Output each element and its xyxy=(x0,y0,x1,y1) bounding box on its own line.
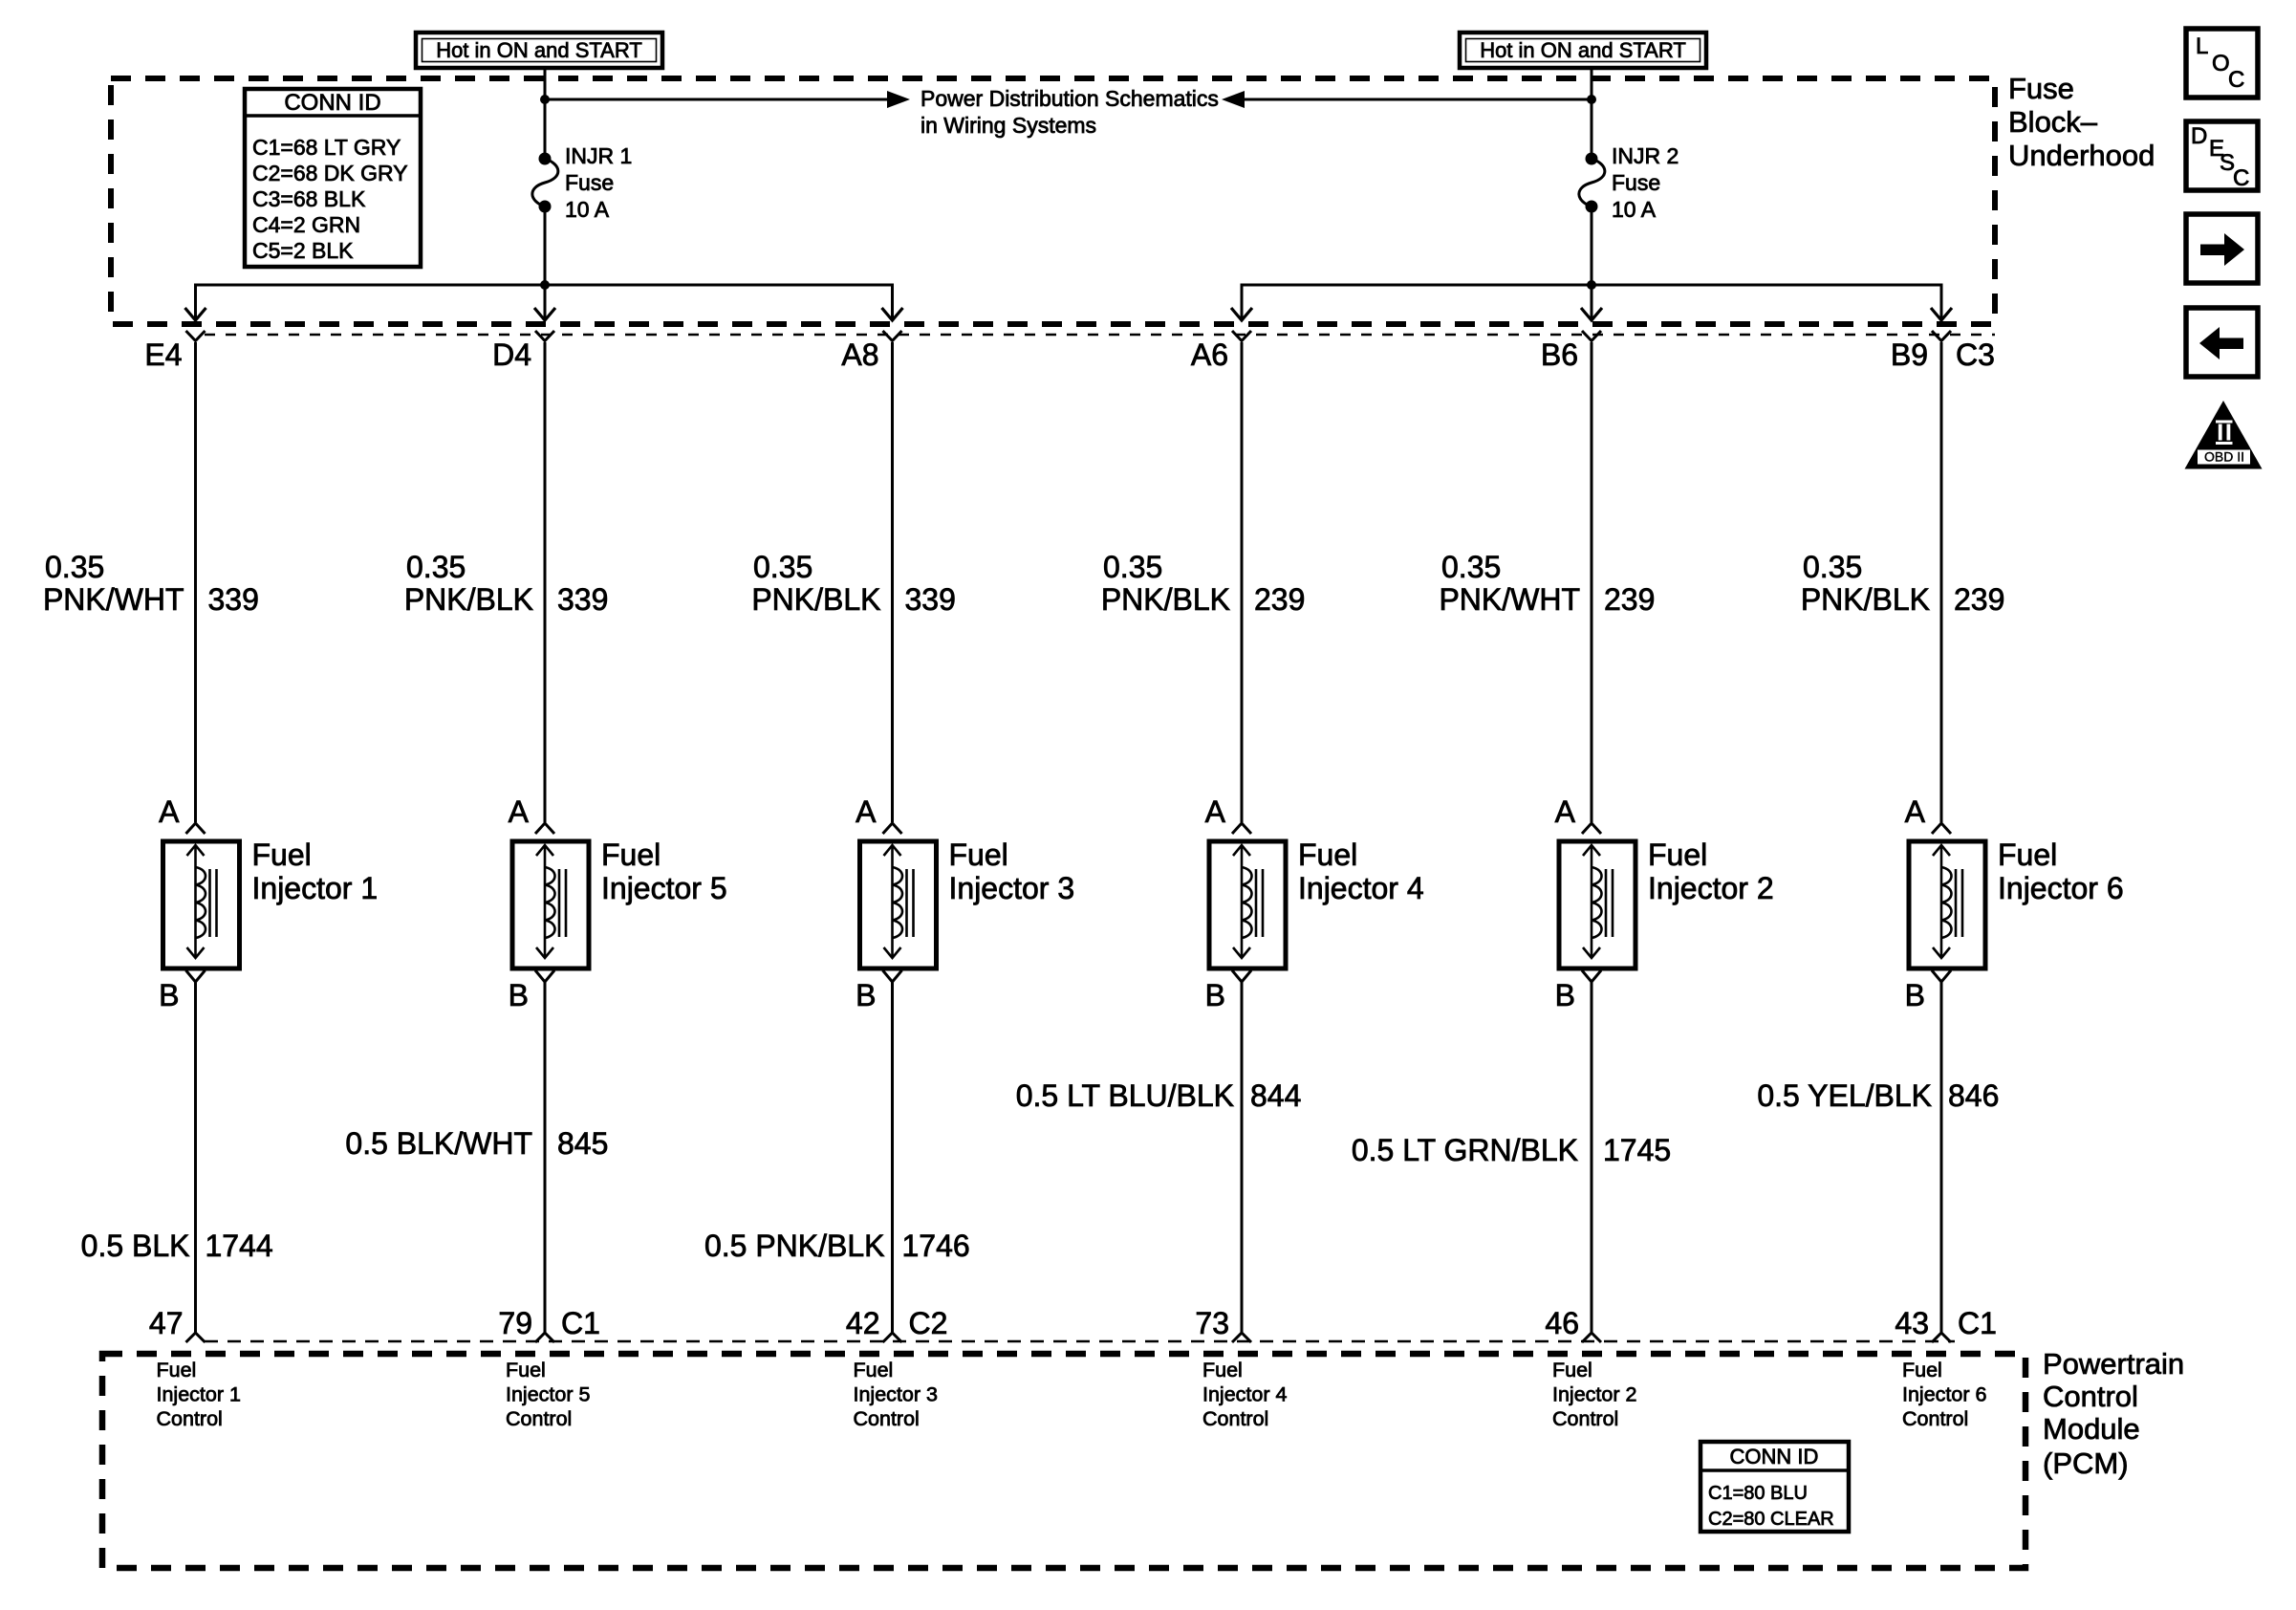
svg-text:0.5 LT BLU/BLK: 0.5 LT BLU/BLK xyxy=(1016,1078,1234,1113)
svg-text:Module: Module xyxy=(2043,1412,2140,1446)
svg-text:Control: Control xyxy=(506,1407,572,1430)
svg-text:B: B xyxy=(1555,978,1575,1012)
svg-text:A: A xyxy=(509,794,530,829)
svg-text:C3=68 BLK: C3=68 BLK xyxy=(252,186,366,211)
svg-text:Fuel: Fuel xyxy=(854,1359,894,1382)
svg-text:INJR 1: INJR 1 xyxy=(565,143,632,168)
svg-text:0.35: 0.35 xyxy=(45,550,104,584)
svg-text:Control: Control xyxy=(157,1407,223,1430)
svg-text:C5=2 BLK: C5=2 BLK xyxy=(252,238,354,263)
svg-text:43: 43 xyxy=(1895,1306,1929,1340)
svg-text:0.35: 0.35 xyxy=(753,550,812,584)
svg-text:CONN ID: CONN ID xyxy=(1730,1445,1819,1469)
svg-text:CONN ID: CONN ID xyxy=(284,90,380,116)
svg-text:A6: A6 xyxy=(1191,337,1228,372)
svg-text:Control: Control xyxy=(854,1407,920,1430)
svg-text:Injector 4: Injector 4 xyxy=(1298,871,1424,905)
svg-text:INJR 2: INJR 2 xyxy=(1612,143,1679,168)
svg-text:846: 846 xyxy=(1948,1078,1999,1113)
svg-text:in Wiring Systems: in Wiring Systems xyxy=(921,113,1096,138)
svg-text:Injector 4: Injector 4 xyxy=(1202,1383,1287,1406)
svg-text:Injector 3: Injector 3 xyxy=(949,871,1075,905)
svg-text:73: 73 xyxy=(1195,1306,1229,1340)
svg-text:C2=68 DK GRY: C2=68 DK GRY xyxy=(252,161,408,185)
svg-text:Injector 2: Injector 2 xyxy=(1648,871,1774,905)
svg-text:C1=68 LT GRY: C1=68 LT GRY xyxy=(252,135,401,160)
svg-text:Fuel: Fuel xyxy=(1298,838,1357,872)
svg-text:A: A xyxy=(856,794,877,829)
svg-text:0.5 YEL/BLK: 0.5 YEL/BLK xyxy=(1757,1078,1932,1113)
svg-text:239: 239 xyxy=(1254,582,1305,617)
svg-text:Fuel: Fuel xyxy=(1202,1359,1243,1382)
svg-text:Underhood: Underhood xyxy=(2008,139,2155,172)
svg-text:PNK/BLK: PNK/BLK xyxy=(1101,582,1230,617)
svg-text:PNK/WHT: PNK/WHT xyxy=(43,582,184,617)
svg-text:Injector 5: Injector 5 xyxy=(506,1383,590,1406)
svg-text:Fuse: Fuse xyxy=(1612,170,1660,195)
svg-text:Injector 1: Injector 1 xyxy=(252,871,379,905)
svg-text:A8: A8 xyxy=(841,337,878,372)
svg-text:Injector 5: Injector 5 xyxy=(601,871,727,905)
svg-text:B: B xyxy=(509,978,529,1012)
svg-text:B: B xyxy=(1205,978,1225,1012)
svg-text:Control: Control xyxy=(2043,1380,2138,1413)
svg-text:B: B xyxy=(856,978,876,1012)
svg-text:Hot in ON and START: Hot in ON and START xyxy=(1480,38,1686,62)
svg-text:239: 239 xyxy=(1954,582,2004,617)
svg-text:339: 339 xyxy=(208,582,259,617)
svg-text:O: O xyxy=(2212,51,2230,76)
svg-text:Fuel: Fuel xyxy=(949,838,1008,872)
svg-text:Fuse: Fuse xyxy=(565,170,614,195)
svg-text:Fuel: Fuel xyxy=(506,1359,546,1382)
svg-text:B9: B9 xyxy=(1891,337,1928,372)
svg-text:L: L xyxy=(2196,33,2208,59)
svg-text:Fuel: Fuel xyxy=(1902,1359,1942,1382)
svg-text:47: 47 xyxy=(149,1306,184,1340)
svg-text:10 A: 10 A xyxy=(565,197,610,222)
svg-text:Fuel: Fuel xyxy=(1648,838,1707,872)
svg-text:PNK/BLK: PNK/BLK xyxy=(1801,582,1930,617)
svg-text:0.35: 0.35 xyxy=(1803,550,1862,584)
svg-text:PNK/WHT: PNK/WHT xyxy=(1439,582,1580,617)
svg-text:C1: C1 xyxy=(561,1306,600,1340)
svg-text:Injector 3: Injector 3 xyxy=(854,1383,938,1406)
svg-text:C3: C3 xyxy=(1956,337,1995,372)
svg-text:1746: 1746 xyxy=(902,1229,970,1263)
svg-text:Injector 2: Injector 2 xyxy=(1552,1383,1636,1406)
svg-text:C1=80 BLU: C1=80 BLU xyxy=(1708,1483,1808,1504)
svg-text:Fuse: Fuse xyxy=(2008,72,2074,105)
svg-text:C1: C1 xyxy=(1958,1306,1997,1340)
svg-text:Control: Control xyxy=(1202,1407,1268,1430)
svg-text:E4: E4 xyxy=(144,337,182,372)
svg-text:845: 845 xyxy=(557,1126,608,1161)
svg-text:OBD II: OBD II xyxy=(2204,449,2244,465)
svg-text:844: 844 xyxy=(1250,1078,1301,1113)
svg-text:A: A xyxy=(1555,794,1576,829)
svg-text:D4: D4 xyxy=(492,337,531,372)
svg-text:0.35: 0.35 xyxy=(1103,550,1162,584)
svg-text:0.5 PNK/BLK: 0.5 PNK/BLK xyxy=(704,1229,885,1263)
svg-text:Injector 6: Injector 6 xyxy=(1902,1383,1986,1406)
svg-text:339: 339 xyxy=(905,582,956,617)
svg-text:0.5 LT GRN/BLK: 0.5 LT GRN/BLK xyxy=(1352,1133,1578,1167)
svg-text:C: C xyxy=(2228,67,2244,93)
svg-text:C4=2 GRN: C4=2 GRN xyxy=(252,212,360,237)
svg-text:339: 339 xyxy=(557,582,608,617)
svg-text:Powertrain: Powertrain xyxy=(2043,1347,2184,1381)
svg-text:C: C xyxy=(2233,165,2249,191)
svg-text:D: D xyxy=(2191,123,2207,149)
svg-text:0.5 BLK: 0.5 BLK xyxy=(81,1229,190,1263)
svg-text:PNK/BLK: PNK/BLK xyxy=(404,582,533,617)
svg-text:Control: Control xyxy=(1552,1407,1618,1430)
svg-text:PNK/BLK: PNK/BLK xyxy=(751,582,880,617)
svg-text:10 A: 10 A xyxy=(1612,197,1657,222)
svg-text:Injector 1: Injector 1 xyxy=(157,1383,241,1406)
svg-text:0.35: 0.35 xyxy=(1441,550,1501,584)
svg-text:Block–: Block– xyxy=(2008,105,2098,139)
svg-text:A: A xyxy=(1905,794,1926,829)
svg-text:Injector 6: Injector 6 xyxy=(1998,871,2124,905)
svg-text:Control: Control xyxy=(1902,1407,1968,1430)
svg-text:Fuel: Fuel xyxy=(1998,838,2057,872)
svg-text:46: 46 xyxy=(1545,1306,1579,1340)
svg-text:0.5 BLK/WHT: 0.5 BLK/WHT xyxy=(345,1126,532,1161)
svg-text:0.35: 0.35 xyxy=(406,550,466,584)
svg-text:A: A xyxy=(159,794,180,829)
svg-text:C2=80 CLEAR: C2=80 CLEAR xyxy=(1708,1509,1834,1530)
svg-text:1744: 1744 xyxy=(206,1229,273,1263)
svg-text:Power Distribution Schematics: Power Distribution Schematics xyxy=(921,86,1219,111)
svg-text:B6: B6 xyxy=(1541,337,1578,372)
svg-text:C2: C2 xyxy=(909,1306,948,1340)
svg-text:B: B xyxy=(1905,978,1925,1012)
svg-text:239: 239 xyxy=(1604,582,1655,617)
svg-text:42: 42 xyxy=(846,1306,880,1340)
svg-text:Fuel: Fuel xyxy=(252,838,312,872)
svg-text:B: B xyxy=(159,978,179,1012)
svg-text:Fuel: Fuel xyxy=(157,1359,197,1382)
svg-text:1745: 1745 xyxy=(1603,1133,1671,1167)
svg-text:(PCM): (PCM) xyxy=(2043,1447,2129,1480)
svg-text:Hot in ON and START: Hot in ON and START xyxy=(436,38,642,62)
svg-text:Fuel: Fuel xyxy=(1552,1359,1592,1382)
svg-text:79: 79 xyxy=(498,1306,532,1340)
svg-text:A: A xyxy=(1205,794,1226,829)
svg-text:Fuel: Fuel xyxy=(601,838,661,872)
